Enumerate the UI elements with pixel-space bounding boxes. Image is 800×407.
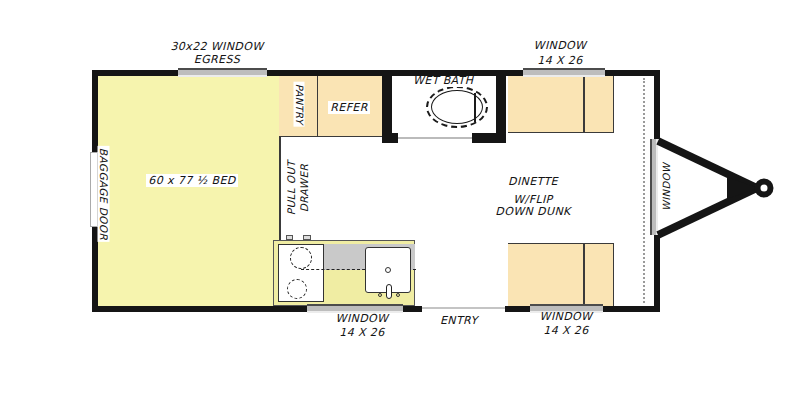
bed-label: 60 x 77 ½ BED — [138, 174, 246, 187]
sink-drain-icon — [385, 267, 391, 273]
refer-label: REFER — [320, 101, 378, 114]
floor-plan: WET BATH 30x22 WINDOW E — [0, 0, 800, 407]
wall-left-upper-segment — [92, 70, 98, 152]
egress-window-label: 30x22 WINDOW EGRESS — [132, 40, 302, 66]
window-bottom-left-label: WINDOW 14 X 26 — [317, 312, 407, 340]
faucet-knob-icon — [378, 293, 382, 297]
wet-bath-wall-bottom-left — [382, 133, 398, 143]
pull-out-drawer-label-line2: DRAWER — [297, 161, 310, 216]
wet-bath-wall-bottom-right — [472, 133, 506, 143]
wall-top-left-segment — [92, 70, 178, 76]
baggage-door-label: BAGGAGE DOOR — [97, 146, 110, 242]
dinette-seat-bottom-divider — [583, 243, 585, 306]
stove-burner-icon — [290, 247, 312, 269]
window-bottom-right-label-line2: 14 X 26 — [521, 324, 611, 338]
window-top-right-label-line1: WINDOW — [515, 38, 605, 53]
dinette-seat-top — [508, 76, 614, 133]
drawer-knob — [286, 235, 293, 240]
entry-label: ENTRY — [440, 314, 478, 327]
window-top-right — [523, 68, 605, 77]
kitchen-counter — [273, 240, 415, 306]
bed-area — [98, 76, 279, 306]
window-top-right-label: WINDOW 14 X 26 — [515, 38, 605, 68]
window-bottom-right-label: WINDOW 14 X 26 — [521, 310, 611, 338]
bed-edge-line — [279, 137, 281, 241]
pantry-label: PANTRY — [293, 82, 306, 127]
pull-out-drawer-label: PULL OUT DRAWER — [285, 161, 310, 216]
egress-window-label-line1: 30x22 WINDOW — [132, 40, 302, 53]
window-egress — [178, 68, 267, 77]
faucet-knob-icon — [396, 293, 400, 297]
stove-burner-icon — [287, 279, 307, 299]
dinette-label-line1: DINETTE — [478, 176, 588, 188]
dinette-label: DINETTE W/FLIP DOWN DUNK — [478, 176, 588, 218]
wall-bottom-right-segment — [603, 306, 660, 312]
flip-bunk-dotted-line — [643, 78, 645, 303]
pull-out-drawer-label-line1: PULL OUT — [285, 161, 298, 216]
window-bottom-left-label-line2: 14 X 26 — [317, 326, 407, 340]
window-bottom-left-label-line1: WINDOW — [317, 312, 407, 326]
drawer-knob — [303, 235, 311, 240]
wall-top-right-segment — [605, 70, 660, 76]
entry-opening — [422, 307, 505, 309]
wet-bath-door-threshold — [398, 137, 472, 139]
faucet-icon — [386, 284, 392, 299]
wall-top-middle-segment — [267, 70, 528, 76]
dinette-seat-bottom — [508, 243, 614, 306]
dinette-label-line3: DOWN DUNK — [478, 206, 588, 218]
window-bottom-right-label-line1: WINDOW — [521, 310, 611, 324]
egress-window-label-line2: EGRESS — [132, 53, 302, 66]
toilet-tank-line — [474, 93, 476, 122]
window-right-label: WINDOW — [660, 161, 673, 213]
dinette-seat-top-divider — [583, 76, 585, 133]
wall-bottom-left-segment — [92, 306, 307, 312]
window-top-right-label-line2: 14 X 26 — [515, 53, 605, 68]
